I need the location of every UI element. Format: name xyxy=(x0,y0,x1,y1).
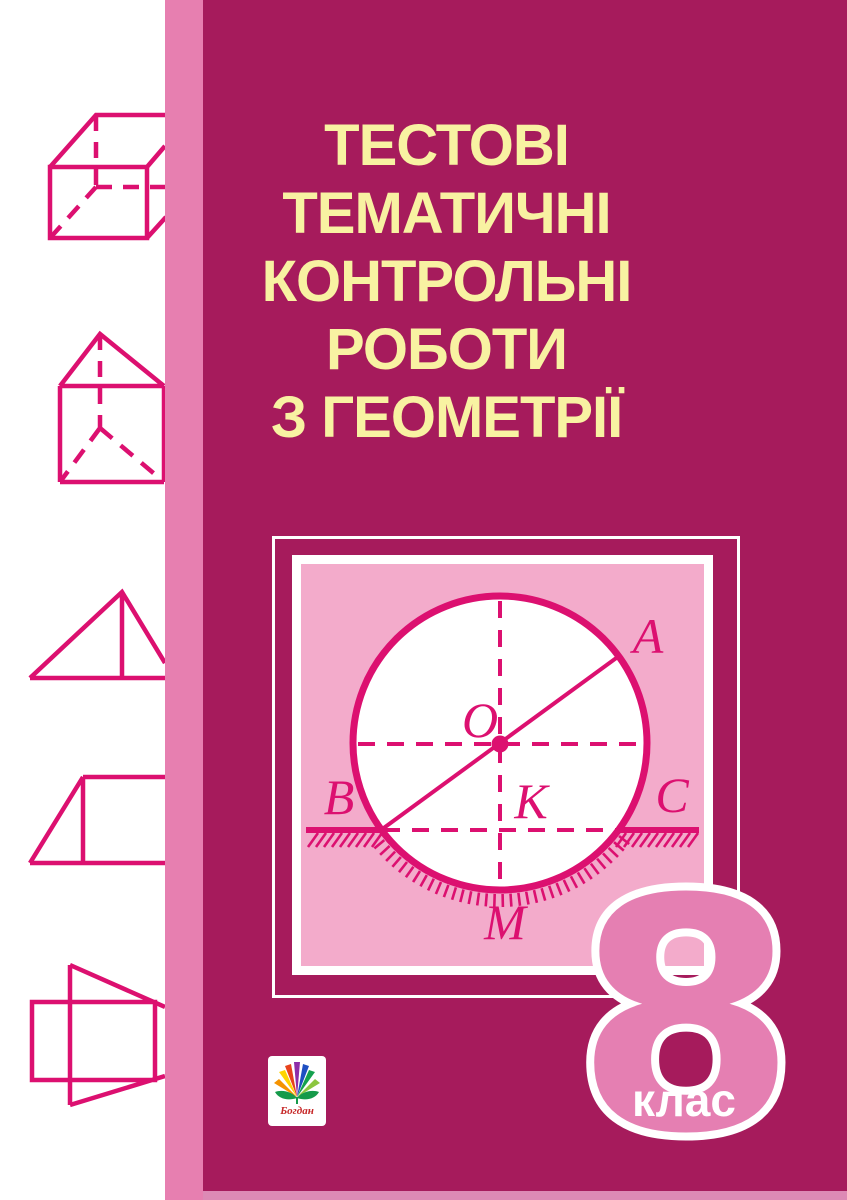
publisher-book-icon: Богдан xyxy=(268,1056,326,1126)
grade-badge: 8 клас xyxy=(0,0,847,1200)
book-cover: ТЕСТОВІ ТЕМАТИЧНІ КОНТРОЛЬНІ РОБОТИ З ГЕ… xyxy=(0,0,847,1200)
publisher-name: Богдан xyxy=(279,1105,314,1117)
grade-number: 8 xyxy=(575,832,798,1200)
grade-label: клас xyxy=(632,1074,736,1126)
publisher-logo: Богдан xyxy=(268,1056,326,1126)
